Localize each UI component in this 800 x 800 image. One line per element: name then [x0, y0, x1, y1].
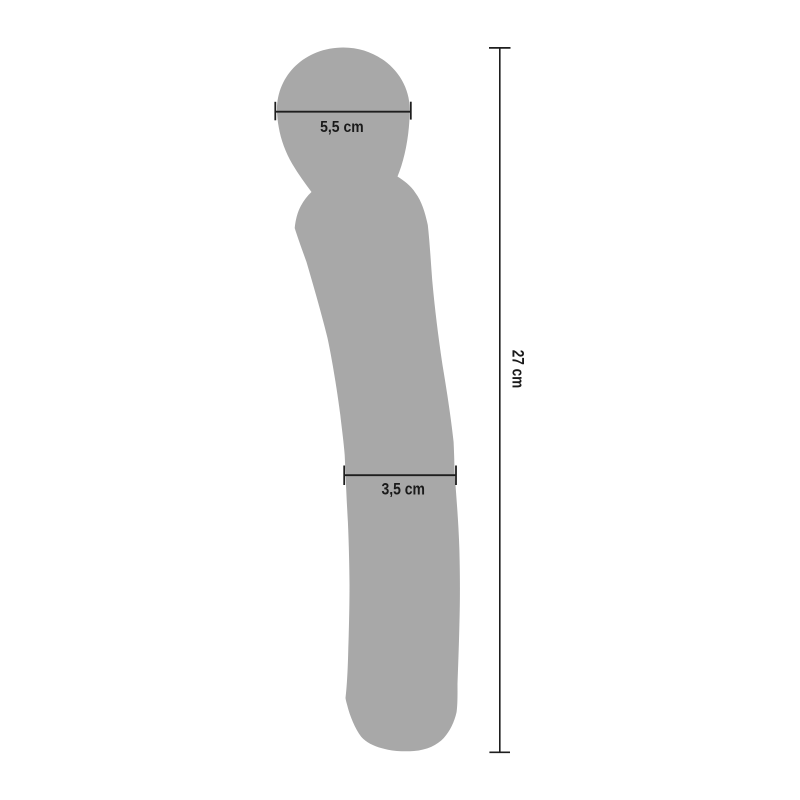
svg-text:5,5 cm: 5,5 cm — [320, 119, 364, 136]
svg-text:27 cm: 27 cm — [509, 350, 528, 389]
svg-text:3,5 cm: 3,5 cm — [381, 481, 425, 499]
